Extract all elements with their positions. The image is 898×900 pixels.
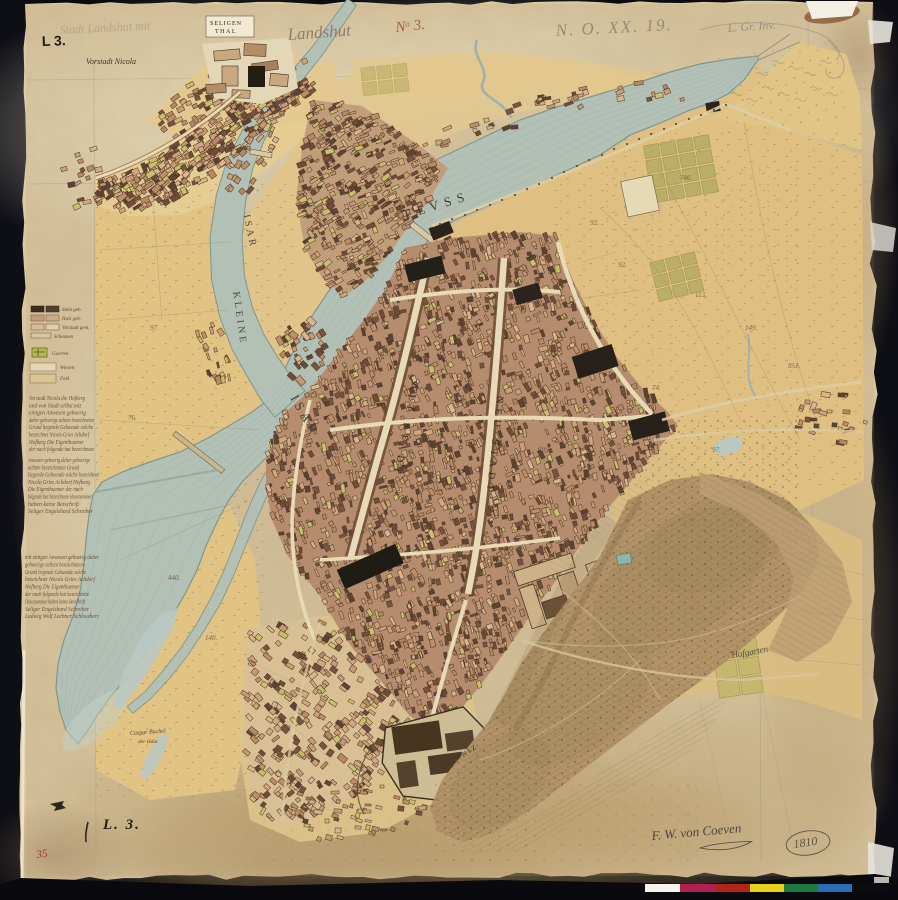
svg-text:einigen Anwesen gehoerig: einigen Anwesen gehoerig: [29, 411, 86, 417]
svg-text:Vorstadt Nicola: Vorstadt Nicola: [86, 57, 136, 66]
svg-text:THAL: THAL: [215, 29, 237, 35]
svg-text:97.: 97.: [712, 446, 721, 454]
svg-text:97.: 97.: [150, 324, 159, 332]
svg-text:der Haut: der Haut: [138, 739, 158, 745]
svg-text:liegende Gebaeude solche bezei: liegende Gebaeude solche bezeichnet: [28, 473, 99, 479]
svg-text:851.: 851.: [788, 362, 801, 370]
svg-text:Grund liegende Gebaeude solche: Grund liegende Gebaeude solche: [25, 570, 86, 576]
svg-text:Stein geb.: Stein geb.: [62, 308, 82, 313]
svg-text:folgende hat bezeichnete Hausn: folgende hat bezeichnete Hausnummer: [28, 494, 93, 501]
svg-text:SELIGEN: SELIGEN: [210, 21, 242, 27]
svg-text:Scheunen: Scheunen: [54, 335, 74, 340]
svg-text:Die Eigenthuemer der nach: Die Eigenthuemer der nach: [27, 487, 83, 493]
svg-text:Hausnummer haben keine Beischr: Hausnummer haben keine Beischrift: [24, 598, 85, 605]
svg-text:440.: 440.: [168, 574, 181, 582]
svg-text:mit einigen Anwesen gehoerig d: mit einigen Anwesen gehoerig daher: [25, 555, 100, 561]
svg-text:Vorstadt gem.: Vorstadt gem.: [62, 326, 90, 331]
svg-text:der nach folgende hat bezeichn: der nach folgende hat bezeichnete: [29, 446, 94, 453]
svg-text:L 3.: L 3.: [42, 32, 66, 49]
svg-text:Feld: Feld: [59, 377, 70, 382]
svg-text:Ludwig Wolf Lechner Schlossher: Ludwig Wolf Lechner Schlossherr: [24, 613, 100, 620]
svg-text:Seliger Engelshard Schreiber: Seliger Engelshard Schreiber: [25, 607, 90, 613]
svg-text:92.: 92.: [590, 219, 599, 227]
svg-text:92.: 92.: [618, 261, 627, 269]
svg-text:achten bezeichneten Grund: achten bezeichneten Grund: [28, 465, 79, 471]
svg-text:bezeichnet Nicola Gries Achdor: bezeichnet Nicola Gries Achdorf: [25, 576, 96, 583]
svg-text:bezeichnet Nicola Gries Achdor: bezeichnet Nicola Gries Achdorf: [29, 432, 90, 439]
svg-text:Grund liegende Gebaeude solche: Grund liegende Gebaeude solche: [29, 425, 93, 431]
svg-text:Hofberg Die Eigenthuemer: Hofberg Die Eigenthuemer: [28, 439, 85, 446]
svg-text:No 3.: No 3.: [394, 17, 426, 36]
svg-text:L. 3.: L. 3.: [102, 817, 141, 833]
svg-text:Holz geb.: Holz geb.: [61, 317, 81, 322]
svg-text:113.: 113.: [695, 291, 707, 299]
svg-text:und von Stadt selbst mit: und von Stadt selbst mit: [29, 403, 81, 409]
svg-text:140.: 140.: [205, 634, 218, 642]
svg-text:35: 35: [35, 847, 49, 861]
svg-text:74.: 74.: [652, 384, 661, 392]
svg-text:Nicola Gries Achdorf Hofberg: Nicola Gries Achdorf Hofberg: [27, 479, 90, 486]
svg-text:Anwesen gehoerig daher gehoeri: Anwesen gehoerig daher gehoerige: [27, 458, 90, 464]
svg-text:Gaerten: Gaerten: [52, 352, 69, 357]
svg-text:gehoerige achten bezeichneten: gehoerige achten bezeichneten: [25, 562, 84, 568]
svg-text:der nach folgende hat bezeichn: der nach folgende hat bezeichnete: [25, 591, 89, 598]
svg-text:daher gehoerige achten bezeich: daher gehoerige achten bezeichneten: [29, 418, 94, 424]
svg-text:Hofberg Die Eigenthuemer: Hofberg Die Eigenthuemer: [24, 584, 81, 591]
svg-text:Seliger Engelshard Schreiber: Seliger Engelshard Schreiber: [28, 509, 94, 515]
svg-text:haben keine Beischrift: haben keine Beischrift: [28, 501, 79, 508]
svg-text:Vorstadt Nicola die Hofberg: Vorstadt Nicola die Hofberg: [29, 395, 85, 402]
svg-text:149.: 149.: [745, 324, 758, 332]
svg-text:76.: 76.: [128, 414, 137, 422]
svg-text:746.: 746.: [680, 174, 693, 182]
svg-text:Wiesen: Wiesen: [60, 366, 75, 371]
